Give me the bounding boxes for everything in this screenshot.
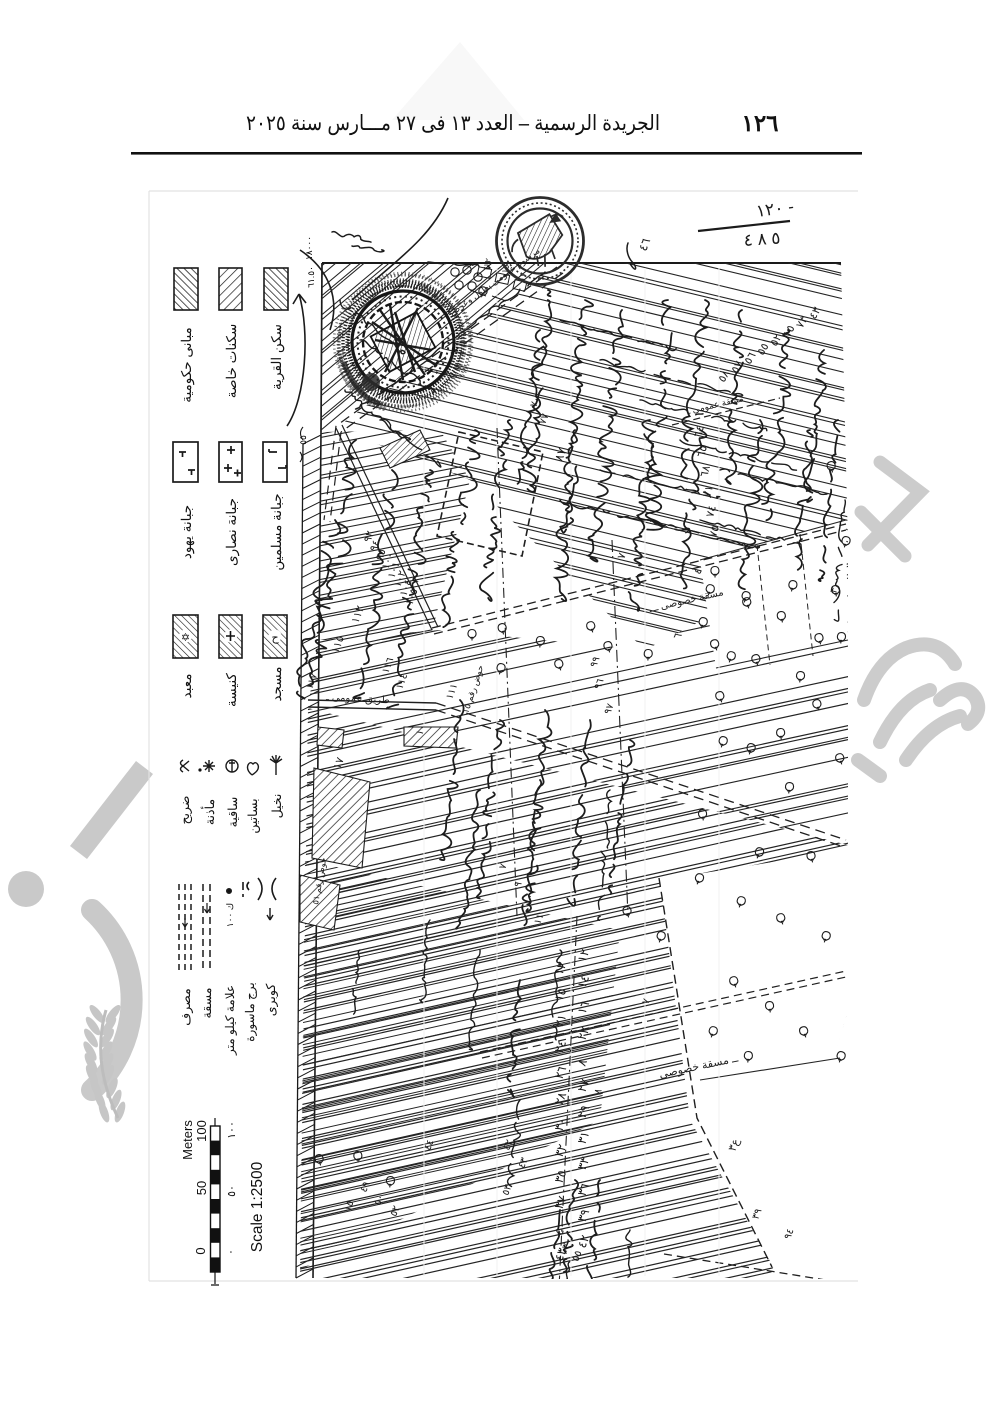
- svg-text:ساقية: ساقية: [226, 797, 240, 828]
- svg-text:مسجد: مسجد: [269, 666, 284, 701]
- svg-text:معبد: معبد: [179, 674, 194, 699]
- svg-text:الجريدة الرسمية – العدد ١٣ فى: الجريدة الرسمية – العدد ١٣ فى ٢٧ مـــارس…: [246, 112, 660, 136]
- svg-text:٦١.٥٠: ٦١.٥٠: [306, 266, 316, 288]
- svg-text:100: 100: [194, 1120, 209, 1142]
- svg-text:جبانة نصارى: جبانة نصارى: [224, 498, 240, 566]
- svg-text:Meters: Meters: [180, 1120, 195, 1160]
- svg-text:جبانة مسلمين: جبانة مسلمين: [269, 493, 285, 570]
- svg-text:برج ماسورة: برج ماسورة: [243, 982, 257, 1041]
- svg-text:بساتين: بساتين: [246, 798, 261, 833]
- svg-text:جبانة يهود: جبانة يهود: [179, 505, 195, 559]
- svg-text:سكن القرية: سكن القرية: [269, 324, 285, 390]
- svg-text:ضريح: ضريح: [178, 795, 193, 824]
- svg-text:علامة كيلو متر: علامة كيلو متر: [223, 985, 237, 1056]
- svg-text:0: 0: [193, 1247, 208, 1254]
- svg-text:مصرف: مصرف: [179, 988, 194, 1025]
- svg-text:ح: ح: [271, 632, 279, 644]
- svg-text:50: 50: [194, 1181, 209, 1195]
- svg-text:مسقة: مسقة: [200, 988, 214, 1019]
- svg-text:٥٠: ٥٠: [226, 1185, 238, 1197]
- svg-text:نخيل: نخيل: [270, 794, 284, 819]
- svg-text:✡: ✡: [181, 632, 190, 644]
- svg-text:كنيسة: كنيسة: [224, 673, 239, 707]
- svg-text:٠: ٠: [225, 1249, 237, 1255]
- svg-text:١٠٠: ١٠٠: [226, 1121, 238, 1139]
- svg-text:ك ١٠٠: ك ١٠٠: [225, 903, 235, 927]
- svg-text:١٢٦: ١٢٦: [741, 110, 778, 136]
- svg-text:Scale 1:2500: Scale 1:2500: [249, 1161, 266, 1252]
- svg-text:مأذنة: مأذنة: [200, 799, 217, 825]
- svg-text:سكنات خاصة: سكنات خاصة: [224, 324, 239, 399]
- svg-text:كوبرى: كوبرى: [264, 983, 279, 1017]
- svg-text:مبانى حكومية: مبانى حكومية: [179, 327, 195, 403]
- svg-text:٥ ٨ ٤: ٥ ٨ ٤: [743, 228, 781, 250]
